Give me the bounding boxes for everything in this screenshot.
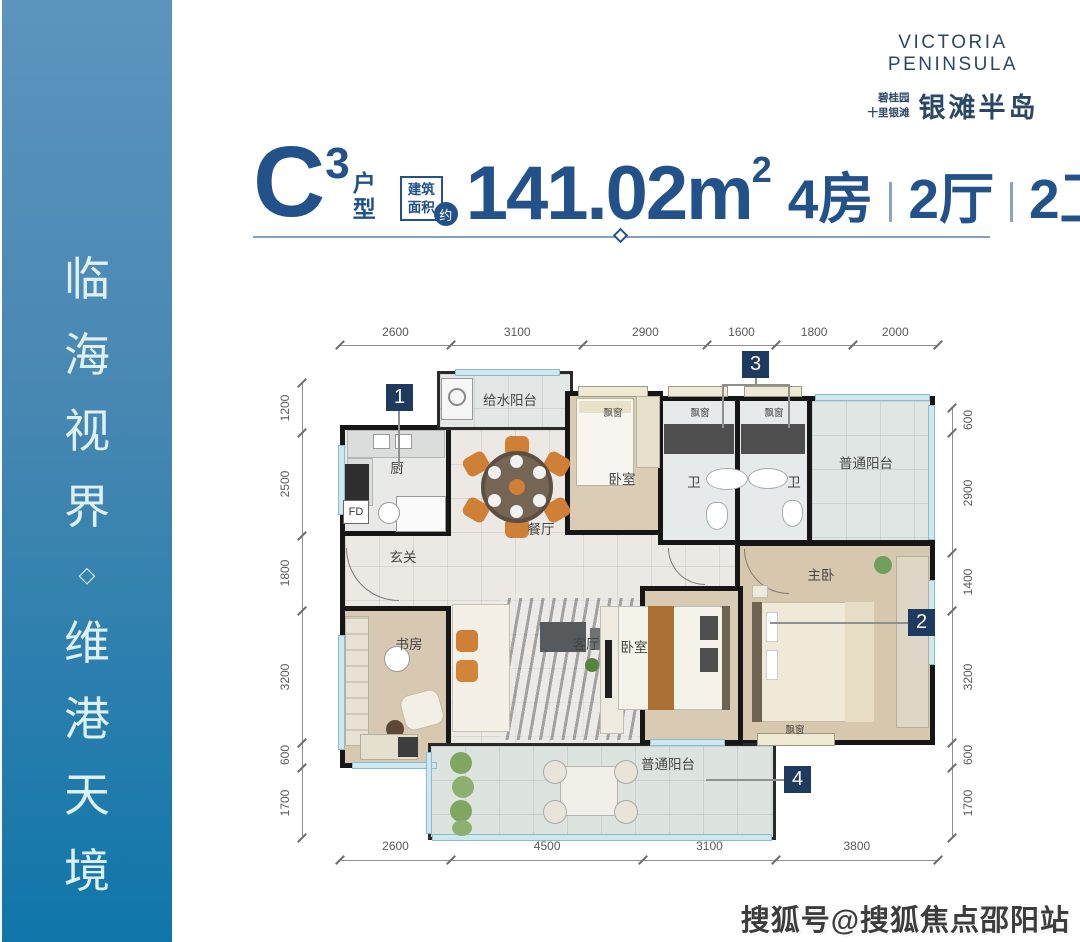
washer-drum-icon — [448, 388, 466, 406]
window-icon — [455, 369, 560, 376]
unit-superscript: 3 — [325, 142, 349, 186]
kitchen-sink — [373, 434, 390, 449]
bay-window-icon — [668, 386, 728, 397]
spec-divider — [889, 182, 892, 222]
headboard-icon — [722, 606, 730, 710]
banner-char: 境 — [64, 848, 110, 894]
label-kitchen: 厨 — [390, 457, 404, 477]
plate-icon — [533, 494, 546, 507]
bathtub-icon — [706, 468, 748, 490]
dim-line-bottom — [340, 860, 938, 861]
area-approx-badge: 约 — [434, 202, 458, 226]
marker-leader-line — [770, 622, 908, 624]
label-bedroom-2: 卧室 — [609, 468, 636, 488]
dim-label: 600 — [961, 745, 975, 765]
marker-badge-3: 3 — [742, 351, 769, 378]
poster-canvas: 临海视界◇维港天境 VICTORIA PENINSULA 碧桂园 十里银滩 银滩… — [0, 0, 1080, 942]
label-dining: 餐厅 — [528, 518, 555, 538]
outdoor-table — [560, 766, 618, 816]
wardrobe — [896, 556, 929, 728]
bookshelf — [345, 616, 369, 746]
sofa-cushion-icon — [456, 630, 478, 652]
bath-vanity — [664, 424, 734, 454]
bath-vanity — [741, 424, 805, 454]
outdoor-chair — [614, 760, 638, 784]
area-label-line1: 建筑 — [408, 181, 435, 199]
dim-line-right — [952, 408, 953, 838]
banner-char: 维 — [64, 620, 110, 666]
marker-leader-line — [398, 411, 400, 466]
banner-char: 海 — [64, 332, 110, 378]
bed-runner-icon — [648, 606, 674, 710]
headboard-icon — [752, 602, 762, 722]
dim-label: 2900 — [961, 479, 975, 506]
plate-icon — [510, 505, 523, 518]
fridge-icon — [396, 496, 446, 532]
pillow-icon — [700, 648, 718, 672]
dim-label: 1200 — [278, 394, 292, 421]
plant-icon — [874, 556, 892, 574]
nightstand — [752, 585, 768, 598]
unit-type-word: 户 型 — [353, 170, 376, 223]
brand-sub-lines: 碧桂园 十里银滩 — [868, 91, 910, 120]
brand-name-en: VICTORIA PENINSULA — [840, 32, 1066, 76]
spec-halls: 2厅 — [908, 172, 994, 227]
spec-baths: 2卫 — [1029, 172, 1080, 227]
outdoor-chair — [614, 800, 638, 824]
brand-sub-line1: 碧桂园 — [868, 91, 910, 106]
dim-label: 3200 — [961, 663, 975, 690]
plant-icon — [452, 776, 474, 798]
dim-label: 4500 — [534, 839, 561, 853]
marker-badge-1: 1 — [386, 384, 413, 411]
diamond-icon: ◇ — [79, 564, 96, 586]
dim-label: 1400 — [961, 568, 975, 595]
label-bedroom-3: 卧室 — [621, 636, 648, 656]
brand-logo: VICTORIA PENINSULA 碧桂园 十里银滩 银滩半岛 — [840, 32, 1066, 125]
plant-icon — [450, 800, 472, 822]
plate-icon — [510, 455, 523, 468]
dim-label: 1700 — [961, 789, 975, 816]
wardrobe — [636, 396, 660, 468]
plate-icon — [533, 466, 546, 479]
label-bay-window: 飘窗 — [764, 405, 783, 419]
dim-label: 1700 — [278, 789, 292, 816]
pillow-icon — [766, 650, 778, 680]
fd-shaft-label: FD — [343, 500, 369, 524]
pillow-icon — [766, 612, 778, 642]
table-centerpiece-icon — [509, 479, 525, 495]
basin-icon — [378, 502, 400, 524]
banner-char: 临 — [64, 256, 110, 302]
dim-label: 3100 — [696, 839, 723, 853]
label-bay-window: 飘窗 — [603, 405, 622, 419]
tv-icon — [605, 640, 612, 698]
dim-label: 2600 — [382, 325, 409, 339]
spec-rooms: 4房 — [788, 172, 874, 227]
window-icon — [928, 405, 935, 540]
brand-sub-line2: 十里银滩 — [868, 106, 910, 121]
label-bath-1: 卫 — [687, 471, 701, 491]
desk-item-icon — [398, 737, 418, 757]
unit-letter: C — [253, 140, 325, 225]
unit-type-word-2: 型 — [353, 196, 376, 222]
window-icon — [650, 739, 725, 746]
unit-type-word-1: 户 — [353, 170, 376, 196]
dim-label: 2500 — [278, 471, 292, 498]
plate-icon — [488, 494, 501, 507]
marker-leader-line — [788, 384, 790, 428]
window-icon — [338, 635, 345, 750]
banner-char: 天 — [64, 772, 110, 818]
dim-label: 3800 — [843, 839, 870, 853]
plant-icon — [585, 658, 599, 672]
slogan-banner: 临海视界◇维港天境 — [2, 0, 172, 942]
plate-icon — [488, 466, 501, 479]
label-foyer: 玄关 — [390, 546, 417, 566]
label-bath-2: 卫 — [787, 471, 801, 491]
area-label-box-wrap: 建筑 面积 约 — [400, 176, 458, 226]
outdoor-chair — [543, 800, 567, 824]
window-icon — [432, 834, 772, 841]
dim-label: 2600 — [382, 839, 409, 853]
toilet-icon — [782, 500, 803, 527]
marker-badge-4: 4 — [784, 766, 811, 793]
label-study: 书房 — [396, 633, 423, 653]
dim-label: 3100 — [504, 325, 531, 339]
area-unit-superscript: 2 — [752, 152, 772, 188]
bed-blanket-icon — [845, 602, 874, 722]
dim-label: 600 — [961, 410, 975, 430]
label-bay-window: 飘窗 — [785, 722, 804, 736]
dim-label: 2900 — [632, 325, 659, 339]
outdoor-chair — [543, 760, 567, 784]
banner-char: 视 — [64, 408, 110, 454]
label-balcony-bottom: 普通阳台 — [641, 753, 695, 773]
marker-leader-line — [706, 779, 784, 781]
label-master-bedroom: 主卧 — [808, 564, 835, 584]
dim-label: 1800 — [801, 325, 828, 339]
banner-char: 界 — [64, 484, 110, 530]
bathtub-icon — [748, 468, 788, 489]
pillow-icon — [700, 616, 718, 640]
spec-divider — [1010, 182, 1013, 222]
marker-badge-2: 2 — [908, 609, 935, 636]
bay-window-icon — [744, 386, 802, 397]
plant-icon — [450, 752, 472, 774]
window-icon — [815, 394, 930, 401]
window-icon — [426, 752, 432, 834]
area-value: 141.02m — [466, 156, 752, 232]
brand-cn-block: 碧桂园 十里银滩 银滩半岛 — [840, 86, 1066, 125]
dim-label: 600 — [278, 745, 292, 765]
watermark: 搜狐号@搜狐焦点邵阳站 — [741, 897, 1070, 939]
area-label-line2: 面积 — [408, 199, 435, 217]
label-living: 客厅 — [573, 633, 600, 653]
unit-headline: C 3 户 型 建筑 面积 约 141.02m 2 4房 2厅 2卫 — [253, 140, 1080, 232]
banner-char: 港 — [64, 696, 110, 742]
dim-line-top — [340, 345, 938, 346]
toilet-icon — [706, 502, 728, 530]
dim-label: 2000 — [882, 325, 909, 339]
label-bay-window: 飘窗 — [690, 405, 709, 419]
dim-label: 1800 — [278, 560, 292, 587]
brand-name-cn: 银滩半岛 — [919, 86, 1039, 125]
marker-leader-line — [722, 384, 790, 386]
label-water-balcony: 给水阳台 — [483, 389, 537, 409]
dim-label: 1600 — [728, 325, 755, 339]
marker-leader-line — [722, 384, 724, 428]
dim-label: 3200 — [278, 663, 292, 690]
plant-icon — [452, 820, 472, 836]
window-icon — [352, 762, 437, 769]
label-balcony-top-right: 普通阳台 — [839, 452, 893, 472]
sofa-cushion-icon — [456, 660, 478, 682]
